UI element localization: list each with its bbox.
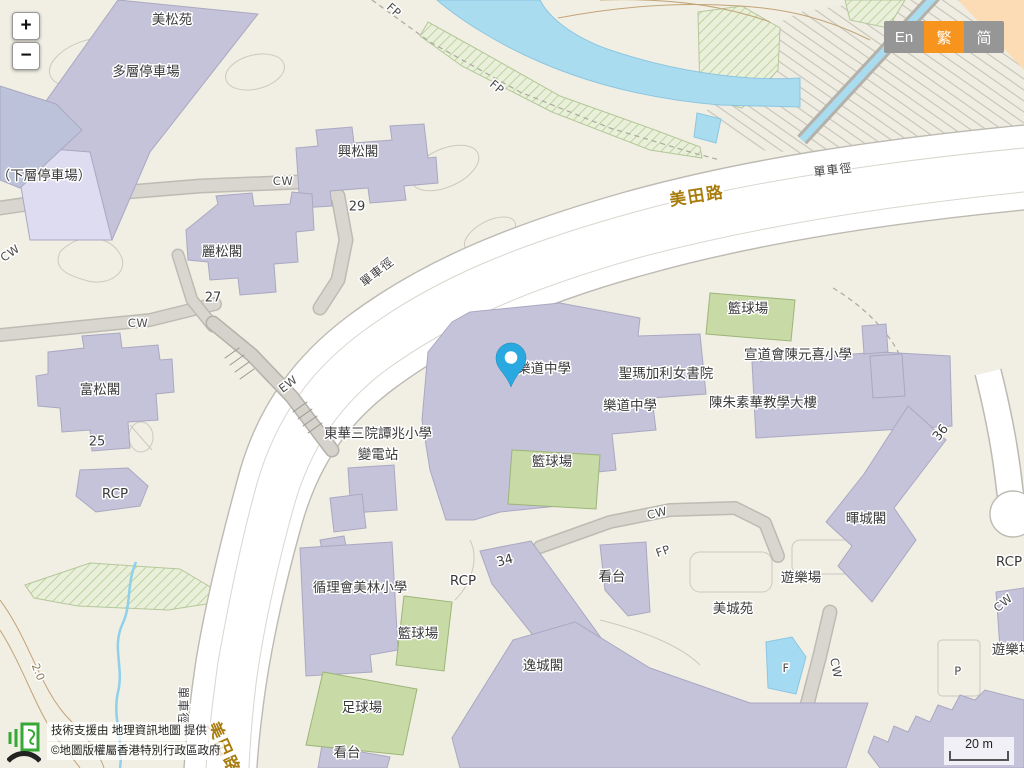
label-st-margaret-college: 聖瑪加利女書院 [619, 365, 714, 382]
label-f-pool: F [782, 661, 789, 675]
label-number-27: 27 [205, 291, 222, 306]
label-number-25: 25 [89, 435, 106, 450]
label-basketball-court-3: 籃球場 [398, 626, 439, 642]
label-cw-1: CW [273, 174, 293, 188]
pond [694, 113, 721, 143]
attribution-support-text: 技術支援由 地理資訊地圖 提供 [47, 722, 211, 741]
language-switcher: En 繁 简 [884, 21, 1004, 53]
label-fmc-mei-lam-primary: 循理會美林小學 [313, 580, 408, 596]
label-cycle-track-3: 單車徑 [176, 686, 190, 725]
label-basketball-court-1: 籃球場 [728, 301, 769, 317]
label-rcp-west: RCP [102, 486, 128, 502]
geoinfo-map-logo[interactable] [7, 722, 41, 764]
attribution-copyright-text: ©地圖版權屬香港特別行政區政府 [47, 742, 224, 761]
label-playground-1: 遊樂場 [781, 569, 822, 586]
label-playground-2: 遊樂場 [992, 641, 1024, 658]
label-lower-carpark: （下層停車場） [0, 167, 91, 184]
label-rcp-east: RCP [996, 554, 1022, 570]
scale-bar: 20 m [944, 737, 1014, 765]
attribution: 技術支援由 地理資訊地圖 提供 ©地圖版權屬香港特別行政區政府 [7, 722, 224, 764]
label-yat-shing-house: 逸城閣 [523, 658, 564, 674]
label-basketball-court-2: 籃球場 [532, 454, 573, 470]
pin-center [505, 351, 518, 364]
label-number-29: 29 [349, 200, 366, 215]
label-stand-2: 看台 [599, 569, 626, 585]
lang-button-simplified-chinese[interactable]: 简 [964, 21, 1004, 53]
label-lai-chung-house: 麗松閣 [202, 244, 243, 260]
label-substation: 變電站 [358, 447, 399, 463]
map-app: { "ui": { "zoom_control": {"zoom_in": "+… [0, 0, 1024, 768]
label-mei-shing-court: 美城苑 [713, 601, 754, 617]
zoom-in-button[interactable]: + [12, 12, 40, 40]
zoom-out-button[interactable]: − [12, 42, 40, 70]
map-canvas[interactable]: 美松苑多層停車場（下層停車場）興松閣29麗松閣27富松閣25RCPCWCWCWE… [0, 0, 1024, 768]
label-fai-shing-house: 暉城閣 [846, 511, 887, 527]
lang-button-en[interactable]: En [884, 21, 924, 53]
scale-bar-rule [949, 751, 1009, 761]
label-rcp-center: RCP [450, 573, 476, 589]
label-cw-2: CW [128, 316, 148, 330]
zoom-control: + − [12, 12, 40, 70]
scale-bar-label: 20 m [944, 737, 1014, 751]
label-football-pitch: 足球場 [342, 700, 383, 716]
lang-button-traditional-chinese[interactable]: 繁 [924, 21, 964, 53]
label-fu-chung-house: 富松閣 [80, 381, 121, 398]
label-p: P [954, 664, 961, 678]
label-stand-1: 看台 [334, 745, 361, 761]
label-chan-yuen-hei-primary: 宣道會陳元喜小學 [744, 347, 852, 363]
label-mei-chung-court: 美松苑 [152, 12, 193, 28]
label-chan-chu-so-wah-building: 陳朱素華教學大樓 [709, 395, 817, 411]
label-twgh-tam-shiu-primary: 東華三院譚兆小學 [324, 426, 432, 442]
label-lok-to-college-2: 樂道中學 [603, 397, 657, 414]
label-multi-storey-carpark: 多層停車場 [112, 63, 180, 80]
label-hing-chung-house: 興松閣 [338, 144, 379, 160]
